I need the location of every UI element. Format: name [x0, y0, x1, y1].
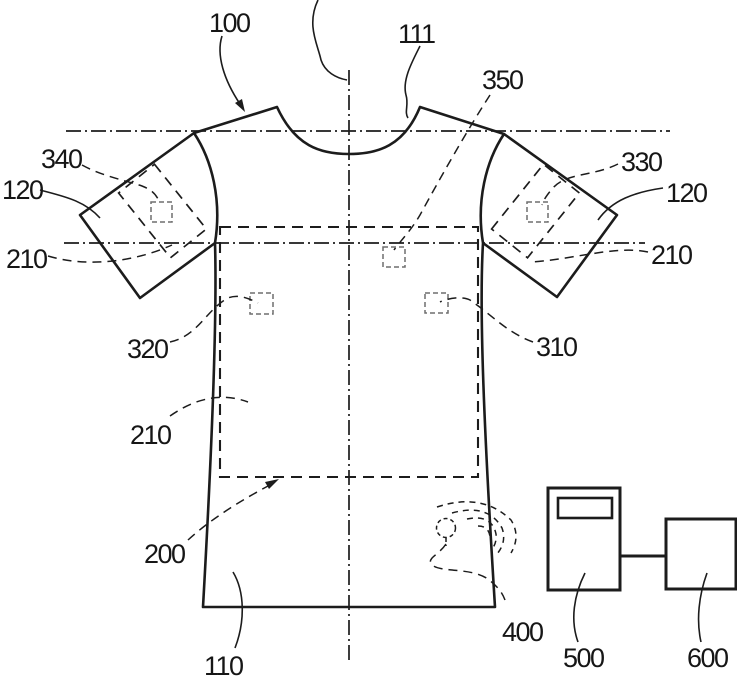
leader-110 [233, 572, 242, 648]
monitor-device-screen [558, 498, 612, 518]
leader-200 [188, 486, 268, 540]
arrowhead-100 [235, 99, 245, 112]
ref-label-400: 400 [502, 619, 543, 646]
sensor-340-square [151, 202, 172, 222]
sensor-320-square [250, 293, 273, 314]
sensor-330-square [527, 202, 548, 222]
ref-label-200: 200 [144, 541, 185, 568]
ref-label-600: 600 [687, 645, 728, 672]
leader-500 [574, 573, 585, 642]
arrowhead-200 [265, 479, 279, 489]
ref-label-111: 111 [398, 21, 435, 48]
ref-label-310: 310 [536, 334, 577, 361]
leader-111 [405, 46, 420, 118]
ref-label-350: 350 [482, 67, 523, 94]
ref-label-210-left: 210 [6, 246, 47, 273]
leader-100 [220, 36, 240, 104]
top-leader-line [313, 0, 347, 80]
leader-600 [699, 573, 707, 642]
figure-linework [0, 0, 737, 677]
ref-label-110: 110 [204, 653, 243, 677]
ref-label-210-mid: 210 [130, 422, 171, 449]
ref-label-120-right: 120 [666, 180, 707, 207]
wireless-waves [437, 502, 516, 554]
ref-label-330: 330 [621, 149, 662, 176]
ref-label-120-left: 120 [2, 177, 43, 204]
ref-label-320: 320 [127, 336, 168, 363]
sensor-310-square [425, 293, 448, 313]
patent-figure: 100 111 350 340 330 120 120 210 210 320 … [0, 0, 737, 677]
ref-label-500: 500 [563, 645, 604, 672]
transmitter-circle [437, 519, 456, 538]
leader-210-left [48, 245, 172, 262]
ref-label-340: 340 [41, 146, 82, 173]
leader-120-left [40, 190, 100, 218]
ref-label-100: 100 [209, 10, 250, 37]
external-device-box [666, 519, 736, 589]
ref-label-210-right: 210 [651, 242, 692, 269]
left-sleeve-outline [80, 133, 215, 298]
leader-310 [440, 298, 533, 342]
leader-210-mid [170, 397, 248, 416]
leader-120-right [598, 188, 663, 220]
